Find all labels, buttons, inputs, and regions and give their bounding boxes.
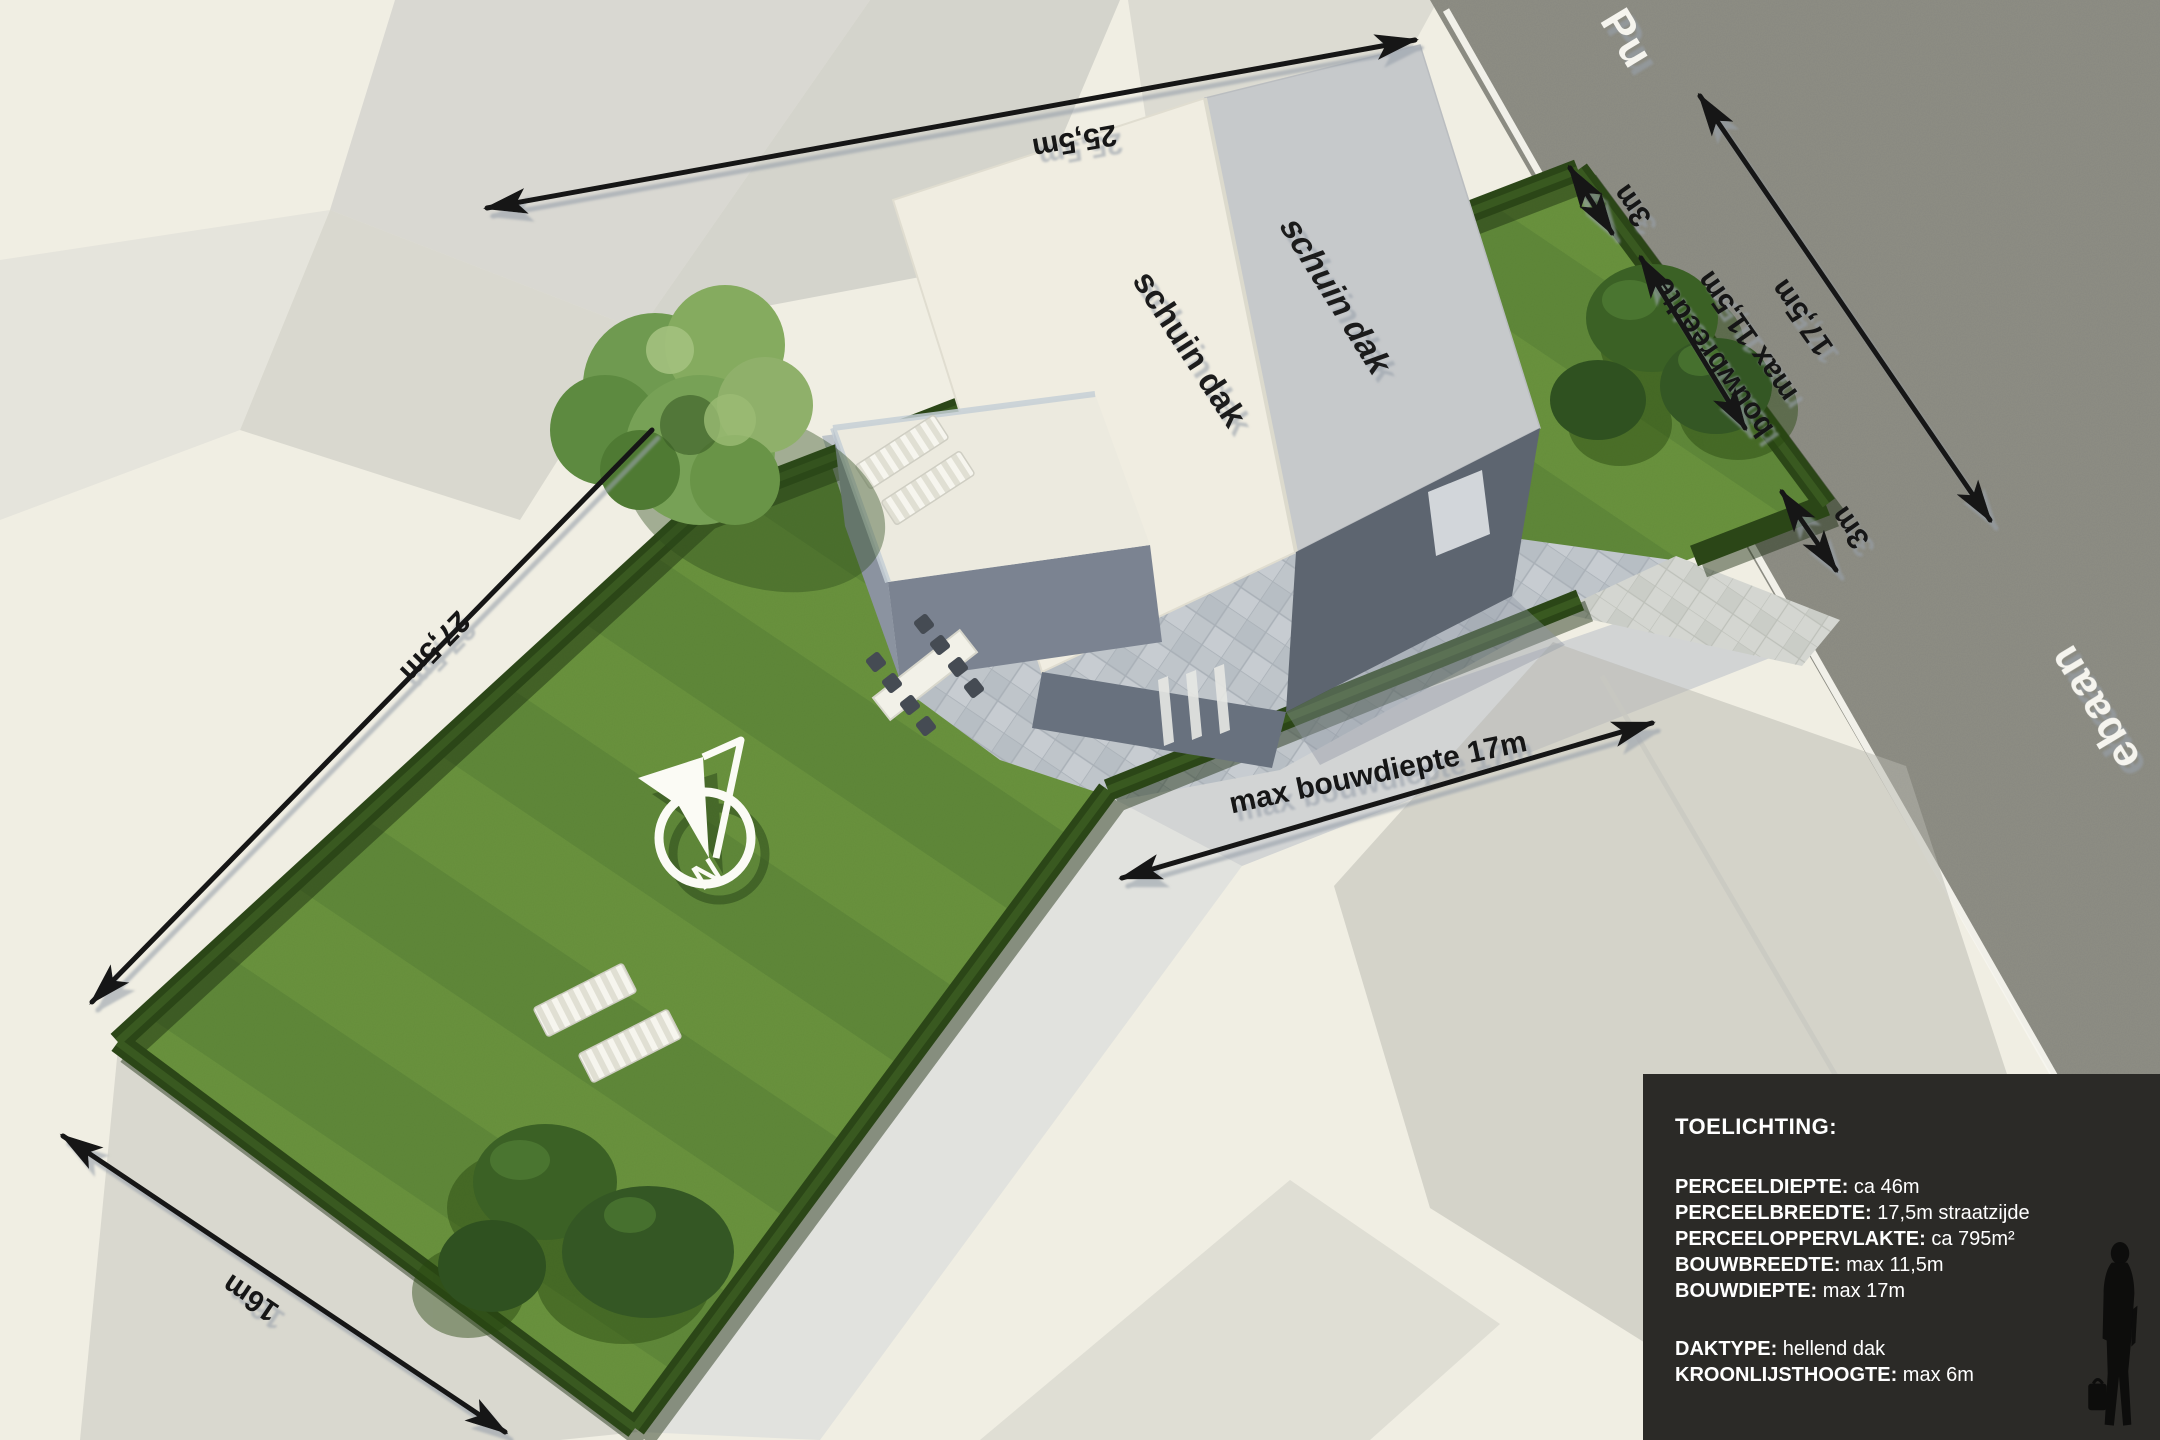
person-silhouette [2082, 1240, 2156, 1440]
legend-row-perceelbreedte: PERCEELBREEDTE: 17,5m straatzijde [1675, 1200, 2160, 1226]
legend-title: TOELICHTING: [1675, 1114, 2160, 1140]
legend-panel: TOELICHTING: PERCEELDIEPTE: ca 46m PERCE… [1643, 1074, 2160, 1440]
legend-row-perceeldiepte: PERCEELDIEPTE: ca 46m [1675, 1174, 2160, 1200]
